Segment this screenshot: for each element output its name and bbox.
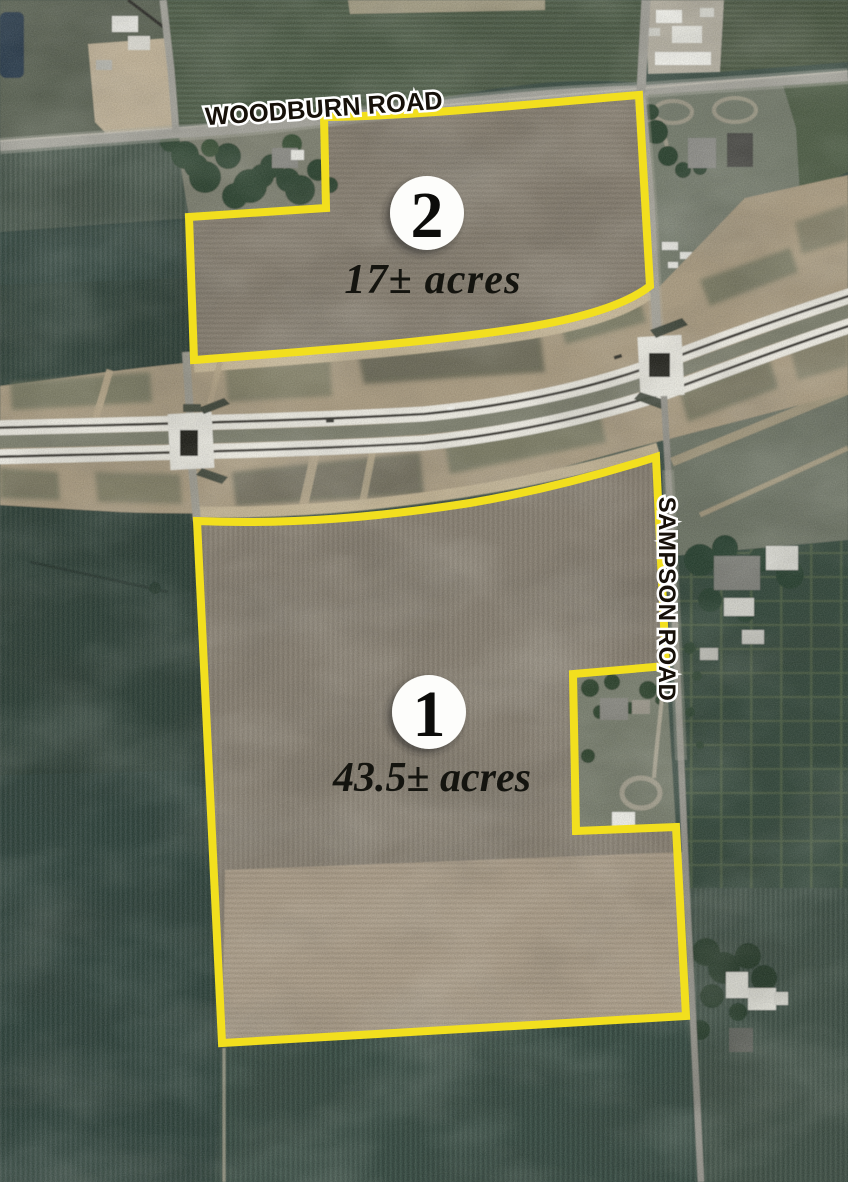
svg-text:1: 1 xyxy=(413,678,446,751)
svg-text:SAMPSON ROAD: SAMPSON ROAD xyxy=(653,497,680,702)
svg-text:2: 2 xyxy=(411,179,444,252)
svg-text:43.5± acres: 43.5± acres xyxy=(332,755,531,801)
svg-text:17± acres: 17± acres xyxy=(344,257,521,303)
